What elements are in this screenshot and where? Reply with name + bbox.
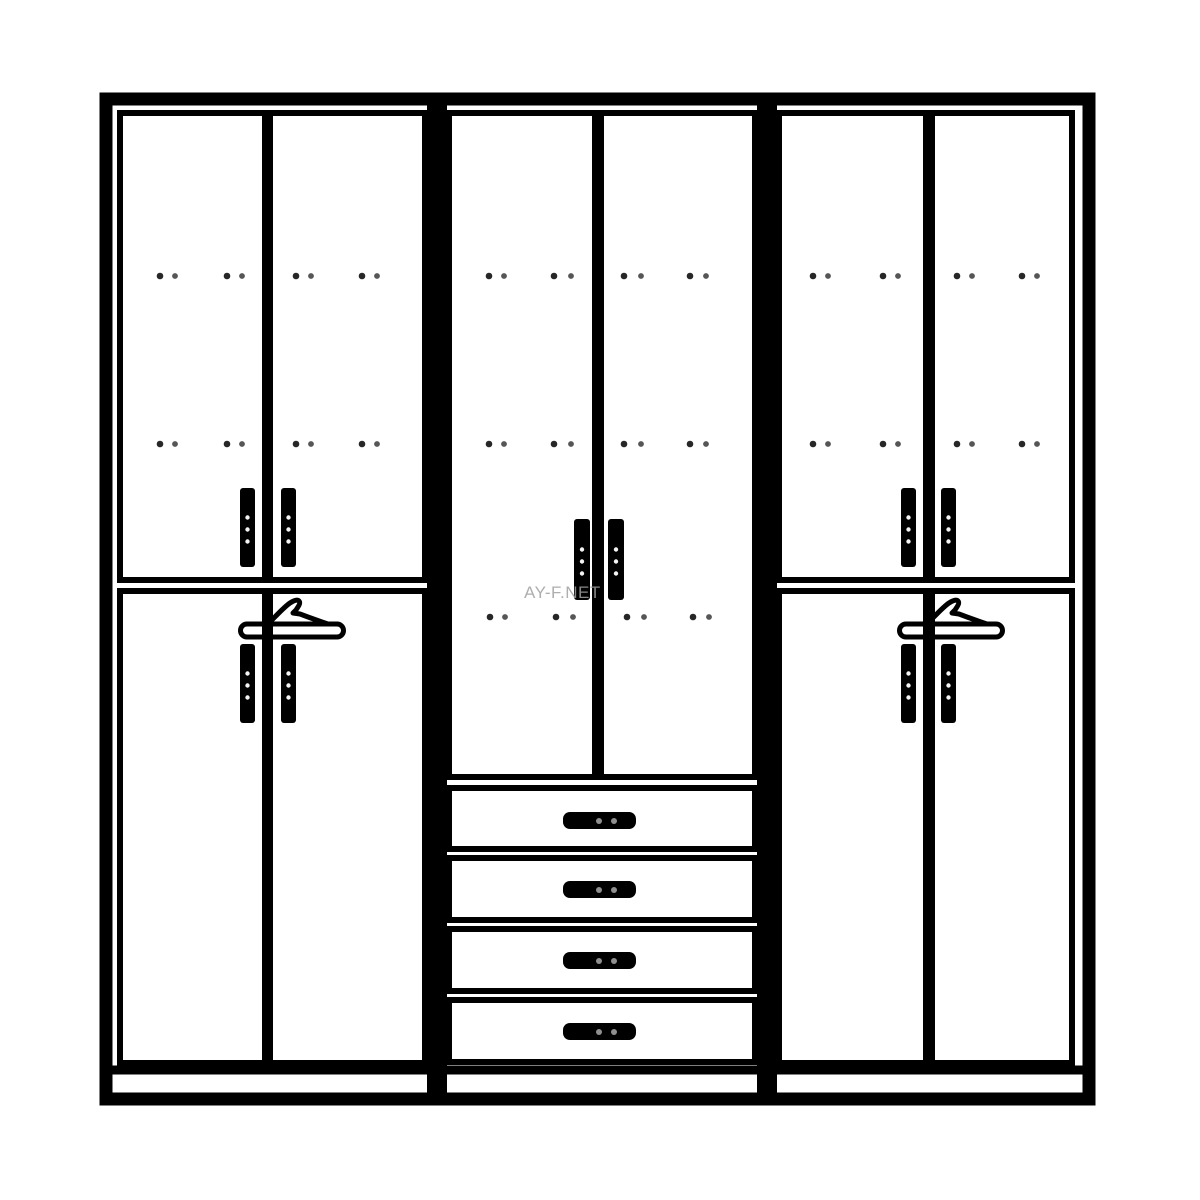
hinge-dot (224, 441, 231, 448)
hinge-dot (157, 273, 164, 280)
door-handle-screw-dot (286, 683, 290, 687)
hinge-dot (810, 273, 817, 280)
handle-right-lower-door-left (901, 644, 916, 723)
drawer-handle-screw-dot (611, 818, 617, 824)
hanger-hook (268, 600, 328, 624)
watermark: AY-F.NET (524, 584, 601, 601)
hinge-dot (172, 273, 178, 279)
door-handle-screw-dot (286, 515, 290, 519)
door-handle-screw-dot (245, 515, 249, 519)
hinge-dot (570, 614, 576, 620)
handle-middle-door-right (608, 519, 624, 600)
door-handle-screw-dot (286, 695, 290, 699)
hinge-dot (895, 273, 901, 279)
door-handle-screw-dot (906, 683, 910, 687)
hinge-dot (359, 441, 366, 448)
section-divider-right (757, 99, 777, 1099)
hinge-dot (374, 441, 380, 447)
drawer-handle-screw-dot (611, 887, 617, 893)
hinge-dot (239, 273, 245, 279)
drawer-handle-screw-dot (596, 958, 602, 964)
hinge-dot (551, 441, 558, 448)
handle-right-upper-door-right (941, 488, 956, 567)
drawer-handle-screw-dot (611, 958, 617, 964)
door-handle-screw-dot (286, 671, 290, 675)
door-handle-screw-dot (614, 547, 618, 551)
door-handle-screw-dot (906, 539, 910, 543)
wardrobe-diagram: AY-F.NET (0, 0, 1200, 1200)
hinge-dot (621, 441, 628, 448)
hinge-dot (969, 273, 975, 279)
hinge-dot (638, 273, 644, 279)
hinge-dot (825, 441, 831, 447)
door-handle-screw-dot (906, 671, 910, 675)
hinge-dot (568, 441, 574, 447)
hinge-dot (1034, 441, 1040, 447)
door-handle-screw-dot (906, 527, 910, 531)
hinge-dot (1019, 441, 1026, 448)
hinge-dot (551, 273, 558, 280)
handle-drawer-2 (563, 881, 636, 898)
door-handle-screw-dot (245, 671, 249, 675)
drawer-handle-screw-dot (596, 1029, 602, 1035)
hinge-dot (568, 273, 574, 279)
hinge-dot (502, 614, 508, 620)
door-handle-screw-dot (946, 539, 950, 543)
door-handle-screw-dot (906, 695, 910, 699)
hanger-bar (241, 624, 344, 637)
door-handle-screw-dot (946, 671, 950, 675)
door-handle-screw-dot (245, 683, 249, 687)
door-handle-screw-dot (245, 695, 249, 699)
hinge-dot (308, 273, 314, 279)
hinge-dot (641, 614, 647, 620)
handle-right-upper-door-left (901, 488, 916, 567)
handle-drawer-3 (563, 952, 636, 969)
hinge-dot (239, 441, 245, 447)
hinge-dot (1034, 273, 1040, 279)
hinge-dot (553, 614, 560, 621)
door-handle-screw-dot (286, 527, 290, 531)
door-handle-screw-dot (946, 695, 950, 699)
handle-drawer-1 (563, 812, 636, 829)
door-handle-screw-dot (906, 515, 910, 519)
hinge-dot (359, 273, 366, 280)
hinge-dot (501, 273, 507, 279)
handle-left-upper-door-left (240, 488, 255, 567)
hinge-dot (293, 441, 300, 448)
hanger-icon-left (241, 600, 344, 637)
hinge-dot (825, 273, 831, 279)
hanger-bar (900, 624, 1003, 637)
hinge-dot (1019, 273, 1026, 280)
handle-left-lower-door-right (281, 644, 296, 723)
hinge-dot (880, 441, 887, 448)
hinge-dot (687, 441, 694, 448)
door-handle-screw-dot (286, 539, 290, 543)
hinge-dot (969, 441, 975, 447)
hinge-dot (880, 273, 887, 280)
hinge-dot (895, 441, 901, 447)
hinge-dot (621, 273, 628, 280)
door-handle-screw-dot (580, 559, 584, 563)
drawer-handle-screw-dot (596, 818, 602, 824)
hinge-dot (293, 273, 300, 280)
handle-drawer-4 (563, 1023, 636, 1040)
door-handle-screw-dot (614, 559, 618, 563)
door-handle-screw-dot (946, 683, 950, 687)
hinge-dot (687, 273, 694, 280)
hinge-dot (703, 441, 709, 447)
door-handle-screw-dot (580, 571, 584, 575)
hinge-dot (810, 441, 817, 448)
hinge-dot (172, 441, 178, 447)
hinge-dot (706, 614, 712, 620)
hinge-dot (703, 273, 709, 279)
hinge-dot (954, 273, 961, 280)
handle-right-lower-door-right (941, 644, 956, 723)
hinge-dot (486, 441, 493, 448)
drawer-handle-screw-dot (596, 887, 602, 893)
hinge-dot (487, 614, 494, 621)
door-handle-screw-dot (245, 539, 249, 543)
door-handle-screw-dot (946, 515, 950, 519)
door-handle-screw-dot (245, 527, 249, 531)
handle-left-lower-door-left (240, 644, 255, 723)
hinge-dot (954, 441, 961, 448)
hinge-dot (501, 441, 507, 447)
hinge-dot (374, 273, 380, 279)
hinge-dot (638, 441, 644, 447)
hinge-dot (224, 273, 231, 280)
door-handle-screw-dot (614, 571, 618, 575)
section-divider-left (427, 99, 447, 1099)
drawer-handle-screw-dot (611, 1029, 617, 1035)
hinge-dot (157, 441, 164, 448)
door-handle-screw-dot (580, 547, 584, 551)
hinge-dot (624, 614, 631, 621)
hanger-hook (927, 600, 987, 624)
hinge-dot (690, 614, 697, 621)
handle-left-upper-door-right (281, 488, 296, 567)
door-handle-screw-dot (946, 527, 950, 531)
hinge-dot (486, 273, 493, 280)
hanger-icon-right (900, 600, 1003, 637)
hinge-dot (308, 441, 314, 447)
